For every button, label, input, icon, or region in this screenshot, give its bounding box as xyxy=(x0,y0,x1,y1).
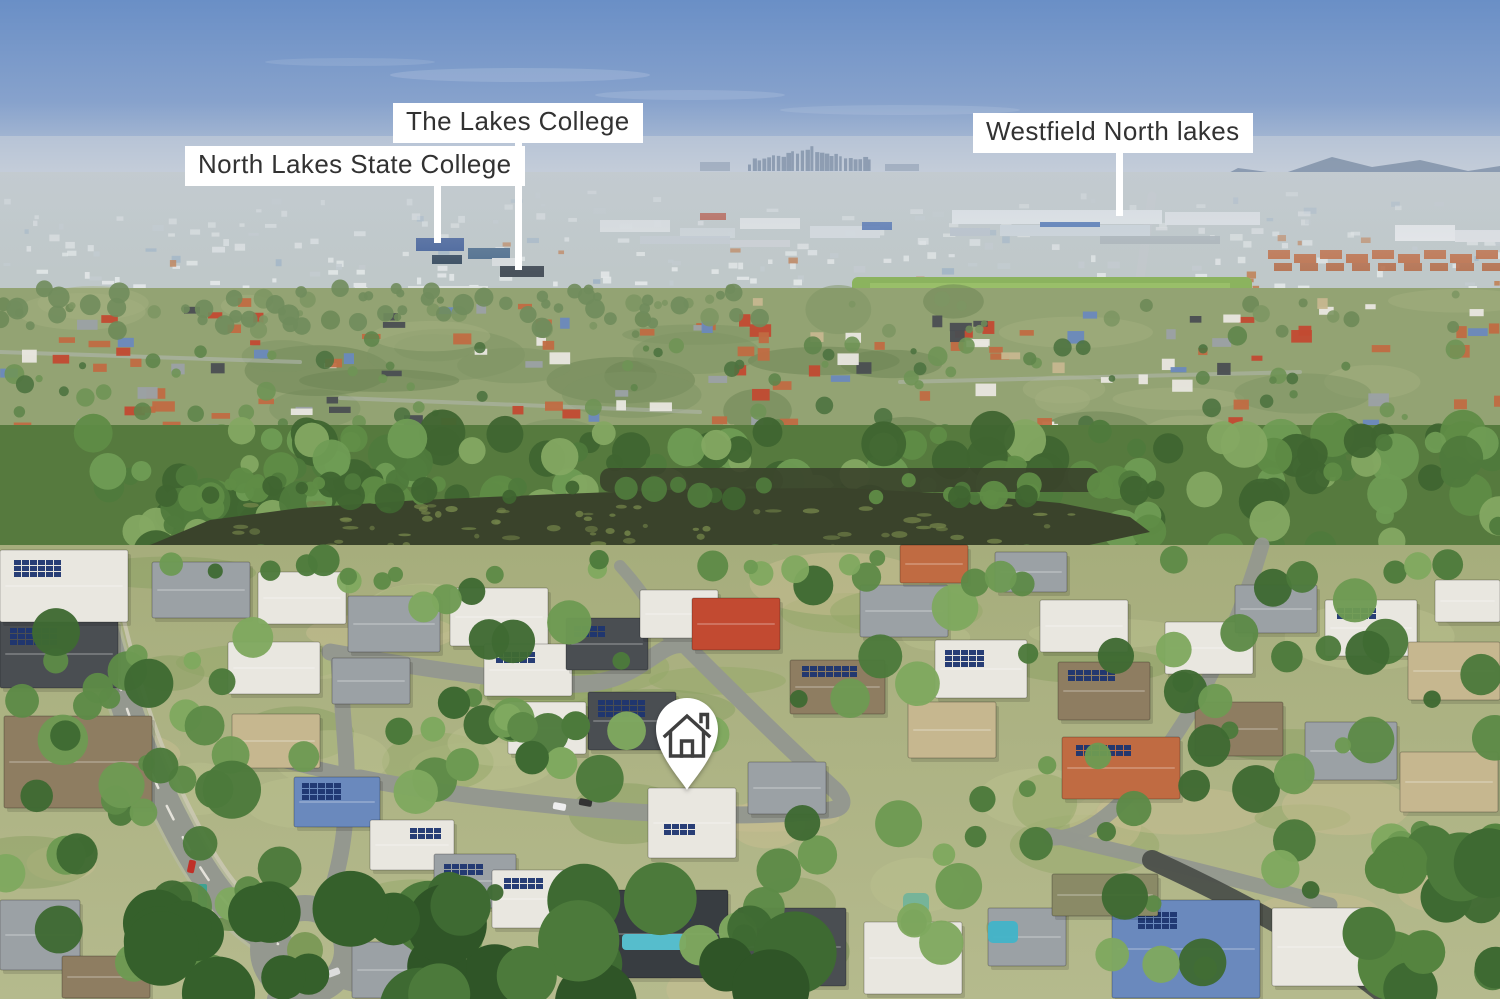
label-the-lakes-college: The Lakes College xyxy=(393,103,643,143)
label-text-the-lakes-college: The Lakes College xyxy=(406,106,630,136)
leader-line-westfield-north-lakes xyxy=(1116,149,1123,216)
label-westfield-north-lakes: Westfield North lakes xyxy=(973,113,1253,153)
home-location-pin xyxy=(642,694,732,794)
pin-body xyxy=(656,698,718,790)
label-north-lakes-state-college: North Lakes State College xyxy=(185,146,525,186)
label-text-westfield-north-lakes: Westfield North lakes xyxy=(986,116,1240,146)
aerial-photograph: North Lakes State College The Lakes Coll… xyxy=(0,0,1500,999)
leader-line-north-lakes-state-college xyxy=(434,182,441,243)
label-text-north-lakes-state-college: North Lakes State College xyxy=(198,149,512,179)
